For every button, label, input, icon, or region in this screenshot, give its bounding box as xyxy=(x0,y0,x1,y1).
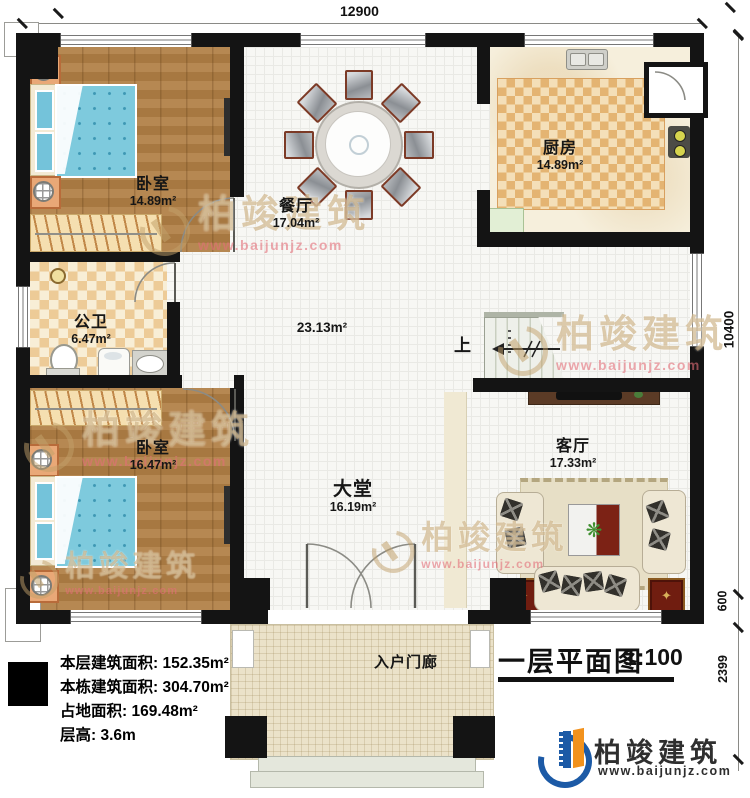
wall-bedroom2-top xyxy=(234,375,244,388)
sofa-cushion xyxy=(560,574,582,596)
brand-building-blue xyxy=(559,731,571,768)
sofa-cushion xyxy=(504,526,527,549)
wall-bathroom-right xyxy=(167,302,180,375)
red-mat: ✦ xyxy=(648,578,685,614)
bedroom1-label: 卧室14.89m² xyxy=(130,176,177,208)
brand-logo-icon xyxy=(538,728,590,786)
pillow xyxy=(35,522,54,560)
kitchen-sink-basin xyxy=(588,53,604,66)
plant-decor xyxy=(634,391,643,398)
wall-bedroom2-top xyxy=(30,375,182,388)
lobby-label: 大堂16.19m² xyxy=(330,479,377,514)
stat-building-area: 本栋建筑面积: 304.70m² xyxy=(60,675,320,697)
title-underline xyxy=(498,677,674,682)
plan-title: 一层平面图 xyxy=(498,640,643,679)
wardrobe xyxy=(30,390,162,426)
dim-tick xyxy=(725,2,736,13)
wall-porch-corner xyxy=(490,578,526,622)
dim-right-main: 10400 xyxy=(721,311,736,349)
stove-burner xyxy=(674,145,686,157)
wardrobe xyxy=(30,214,162,252)
kitchen-label: 厨房14.89m² xyxy=(537,140,584,172)
bedroom1-door xyxy=(180,197,236,254)
window-bedroom1-top xyxy=(60,33,192,47)
dining-chair xyxy=(345,190,373,220)
kitchen-sink-basin xyxy=(570,53,586,66)
entrance-double-door xyxy=(305,538,417,610)
bathroom-door xyxy=(133,262,177,304)
dining-chair xyxy=(404,131,434,159)
wall-bottom xyxy=(660,610,704,624)
stairs-cap xyxy=(484,312,564,317)
dining-label: 餐厅17.04m² xyxy=(273,198,320,230)
dining-chair xyxy=(284,131,314,159)
plan-scale: 1:100 xyxy=(624,644,683,671)
table-lamp xyxy=(33,181,54,202)
dim-tick xyxy=(53,8,64,19)
window-dining-top xyxy=(300,33,426,47)
coffee-table: ❋ xyxy=(568,504,620,556)
dim-line-top xyxy=(22,23,704,24)
stairs-direction-arrow xyxy=(488,340,564,358)
porch-column xyxy=(453,716,495,758)
entrance-threshold xyxy=(268,610,468,624)
brand-url: www.baijunjz.com xyxy=(598,764,731,778)
hall-area-label: 23.13m² xyxy=(297,320,347,335)
pillow xyxy=(35,90,54,130)
compass-icon: ✦ xyxy=(661,588,672,604)
bedroom2-door xyxy=(182,388,238,444)
wall-under-stairs xyxy=(473,378,690,392)
stairs-up-label: 上 xyxy=(454,336,472,355)
television xyxy=(556,391,622,400)
dim-line-right xyxy=(738,33,739,771)
window-kitchen-top xyxy=(524,33,654,47)
wall-bedroom1-dining xyxy=(230,47,244,197)
stat-floor-height: 层高: 3.6m xyxy=(60,723,320,745)
wall-bathroom-top xyxy=(30,252,180,262)
living-floor-strip xyxy=(444,392,467,608)
stat-floor-area: 本层建筑面积: 152.35m² xyxy=(60,651,320,673)
porch-label: 入户门廊 xyxy=(374,655,438,672)
table-lamp xyxy=(31,575,52,596)
plant-icon: ❋ xyxy=(586,518,603,543)
dining-chair xyxy=(345,70,373,100)
wall-kitchen-bottom xyxy=(477,232,690,247)
bathroom-label: 公卫6.47m² xyxy=(71,314,111,346)
window-bedroom2-bottom xyxy=(70,610,202,624)
stove-burner xyxy=(674,130,686,142)
pillow xyxy=(35,482,54,520)
entry-step xyxy=(250,771,484,788)
wall-corner-tl xyxy=(16,33,58,79)
stat-land-area: 占地面积: 169.48m² xyxy=(60,699,320,721)
pillow xyxy=(35,132,54,172)
porch-column xyxy=(225,716,267,758)
dim-right-step: 600 xyxy=(715,591,729,612)
dining-table-center xyxy=(349,135,369,155)
window-bathroom-left xyxy=(16,286,30,348)
living-label: 客厅17.33m² xyxy=(550,438,597,470)
washer-lid xyxy=(104,352,122,360)
dim-top: 12900 xyxy=(340,3,379,19)
porch-pilaster xyxy=(232,630,254,668)
legend-square xyxy=(8,662,48,706)
wall-kitchen-left xyxy=(477,47,490,104)
window-living-bottom xyxy=(530,610,662,624)
pendant-lamp xyxy=(50,268,66,284)
bathroom-sink xyxy=(136,355,164,373)
kitchen-side-door-arc xyxy=(652,70,690,102)
porch-pilaster xyxy=(470,630,490,668)
brand-building-orange xyxy=(573,728,584,768)
bedroom2-label: 卧室16.47m² xyxy=(130,440,177,472)
sofa-cushion xyxy=(583,571,604,592)
table-lamp xyxy=(31,449,52,470)
floor-plan-canvas: 12900 10400 600 2399 xyxy=(0,0,750,798)
wall-bottom xyxy=(16,610,70,624)
window-hall-right xyxy=(690,253,704,347)
dim-right-porch: 2399 xyxy=(716,655,730,683)
